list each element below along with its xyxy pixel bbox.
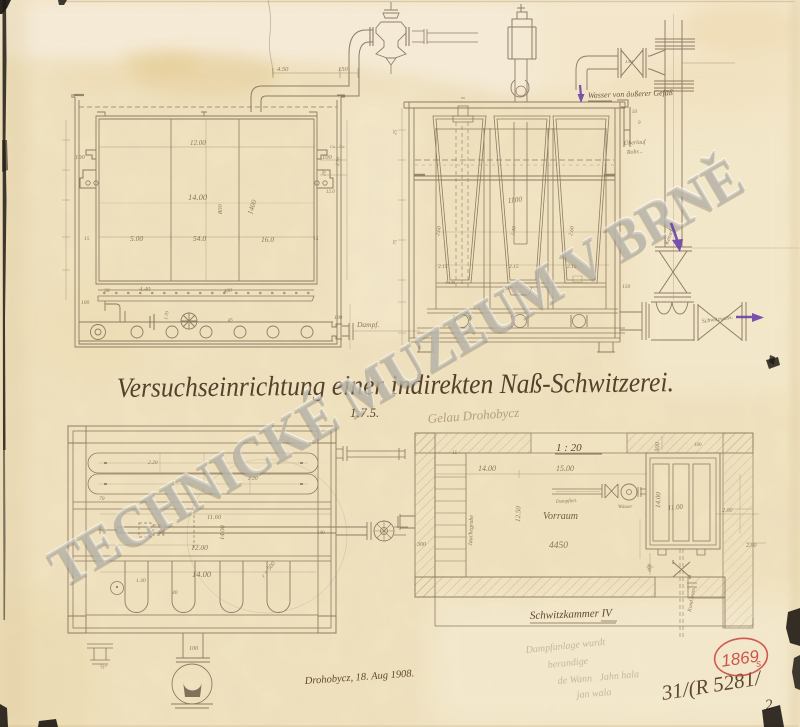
svg-text:14.00: 14.00 — [192, 569, 212, 579]
svg-text:Dampf.: Dampf. — [356, 320, 379, 329]
svg-text:4.40: 4.40 — [139, 286, 151, 293]
svg-text:15.00: 15.00 — [556, 464, 574, 473]
svg-text:150: 150 — [622, 284, 631, 290]
svg-text:150: 150 — [338, 66, 349, 73]
svg-text:400: 400 — [223, 287, 233, 295]
svg-text:100: 100 — [694, 443, 702, 448]
svg-text:54.0: 54.0 — [193, 234, 206, 243]
svg-text:½": ½" — [100, 664, 108, 671]
svg-text:70: 70 — [99, 496, 105, 502]
svg-text:1100: 1100 — [507, 195, 523, 205]
svg-text:800: 800 — [217, 204, 224, 215]
svg-text:300: 300 — [416, 542, 426, 548]
svg-text:12.0: 12.0 — [326, 190, 335, 195]
svg-text:12.50: 12.50 — [514, 506, 523, 523]
svg-text:11.00: 11.00 — [667, 503, 683, 512]
svg-text:4450: 4450 — [549, 541, 568, 551]
svg-text:2.00: 2.00 — [746, 543, 757, 549]
svg-text:1.145: 1.145 — [445, 280, 456, 285]
svg-text:14.00: 14.00 — [219, 524, 227, 540]
svg-text:5.00: 5.00 — [130, 234, 143, 243]
svg-text:1.30: 1.30 — [136, 578, 146, 584]
svg-text:14.00: 14.00 — [188, 192, 208, 202]
svg-text:100: 100 — [322, 154, 333, 161]
svg-text:300: 300 — [654, 441, 661, 453]
svg-text:15: 15 — [452, 451, 458, 456]
svg-text:Vorraum: Vorraum — [543, 511, 578, 522]
svg-text:Rohr...: Rohr... — [626, 149, 643, 156]
svg-text:14.00: 14.00 — [478, 464, 496, 473]
svg-text:Ca—Ca: Ca—Ca — [330, 144, 345, 149]
svg-text:16.0: 16.0 — [261, 235, 274, 244]
svg-text:12.00: 12.00 — [191, 543, 208, 552]
svg-text:12.00: 12.00 — [190, 139, 206, 147]
svg-text:1 : 20: 1 : 20 — [556, 442, 582, 454]
svg-text:2.20: 2.20 — [148, 460, 158, 466]
svg-text:400: 400 — [646, 563, 653, 572]
svg-text:15: 15 — [84, 236, 90, 242]
svg-text:15: 15 — [313, 236, 319, 242]
svg-text:140: 140 — [317, 531, 325, 536]
svg-text:50: 50 — [632, 110, 638, 115]
svg-text:100: 100 — [81, 300, 90, 306]
svg-text:2.70: 2.70 — [336, 157, 342, 167]
svg-text:2.15: 2.15 — [438, 264, 448, 270]
svg-text:14.00: 14.00 — [654, 492, 663, 509]
svg-text:100: 100 — [334, 315, 343, 321]
svg-text:40: 40 — [172, 589, 178, 596]
svg-text:100: 100 — [189, 646, 198, 652]
svg-text:150: 150 — [625, 60, 633, 65]
svg-text:Jauchegrube: Jauchegrube — [468, 515, 475, 547]
svg-text:4.50: 4.50 — [277, 66, 289, 73]
svg-text:30: 30 — [103, 288, 110, 294]
svg-text:100: 100 — [75, 154, 86, 161]
svg-text:Wasser: Wasser — [618, 505, 632, 510]
svg-text:2.00: 2.00 — [722, 508, 733, 514]
